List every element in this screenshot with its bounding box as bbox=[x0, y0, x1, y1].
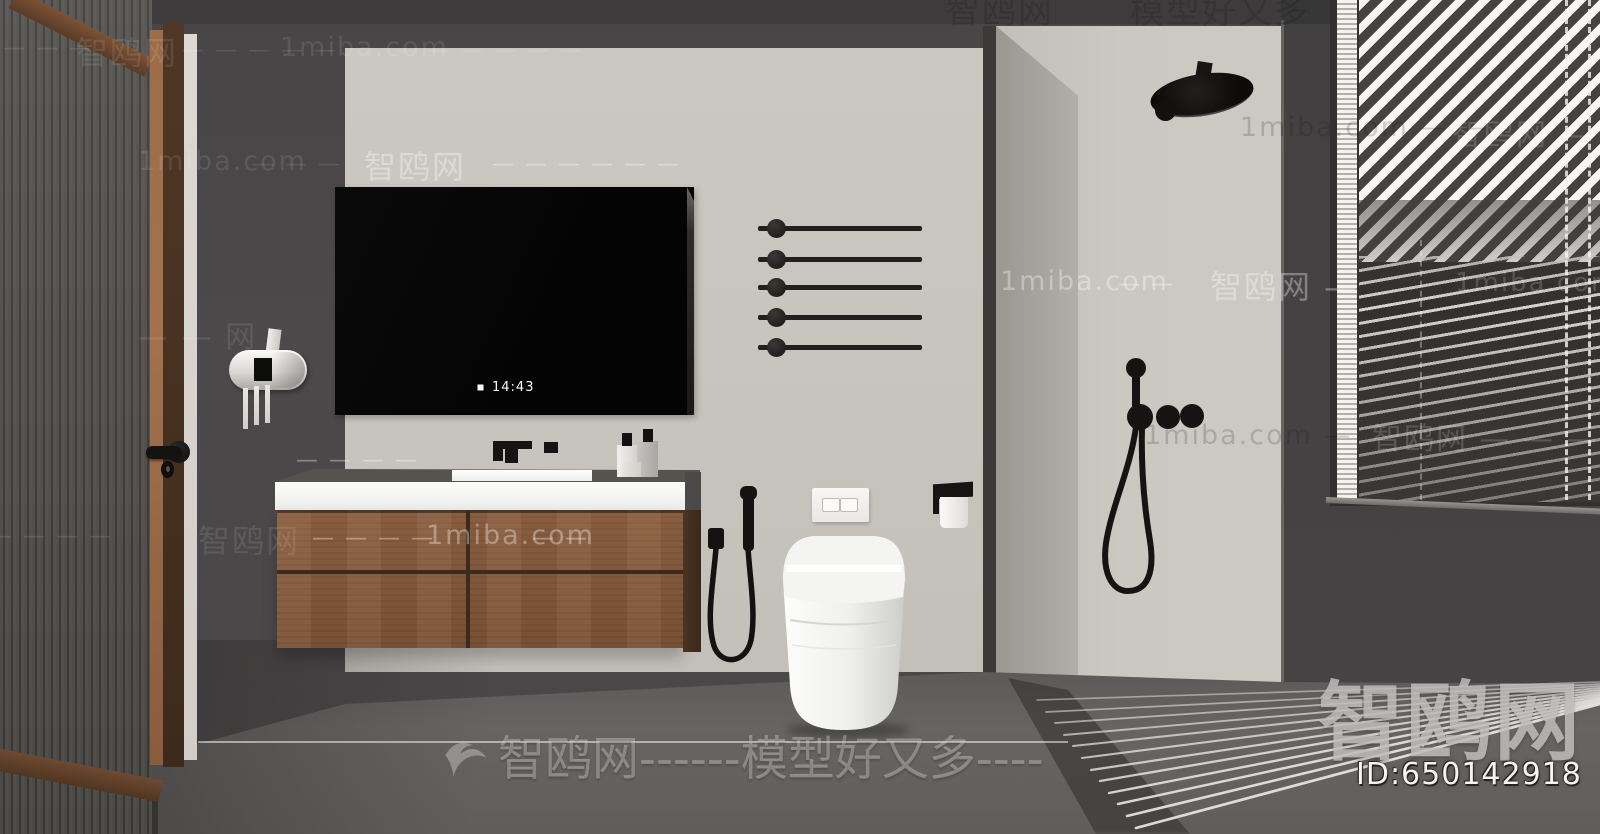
toothbrush bbox=[254, 386, 259, 425]
faucet-control[interactable] bbox=[544, 442, 551, 453]
towel-bar-mount bbox=[767, 250, 786, 269]
bottle-cap bbox=[643, 429, 653, 442]
toothbrush bbox=[243, 388, 248, 429]
blind-cord[interactable] bbox=[1565, 0, 1568, 500]
towel-bar-mount bbox=[767, 219, 786, 238]
rain-shower-mount bbox=[1155, 100, 1176, 121]
towel-bar-mount bbox=[767, 338, 786, 357]
vanity-sink-basin bbox=[452, 470, 592, 481]
smart-mirror-side-bevel bbox=[687, 187, 694, 415]
bidet-sprayer bbox=[690, 480, 780, 680]
model-id: ID:650142918 bbox=[1356, 757, 1582, 792]
door-edge-strip bbox=[184, 34, 197, 760]
drawer-gap-horizontal bbox=[277, 570, 683, 574]
vanity-cabinet-top-gap bbox=[277, 510, 683, 513]
fluted-door-lighting bbox=[0, 0, 152, 834]
toiletry-bottle-small bbox=[623, 462, 641, 477]
faucet-spout-drop bbox=[505, 447, 518, 463]
door-frame-stile-dark bbox=[163, 22, 184, 767]
mirror-time: 14:43 bbox=[492, 380, 534, 395]
mirror-clock: 14:43 bbox=[476, 379, 534, 395]
flush-button[interactable] bbox=[822, 498, 840, 512]
smart-toilet bbox=[770, 525, 920, 740]
toilet-paper-roll bbox=[940, 497, 968, 528]
blind-cord bbox=[1420, 240, 1422, 500]
floor-joint-line bbox=[198, 741, 1068, 743]
toothbrush bbox=[265, 385, 270, 423]
blinds-edge-stack bbox=[1337, 0, 1357, 500]
flush-button[interactable] bbox=[840, 498, 858, 512]
vanity-counter-front bbox=[275, 482, 685, 510]
sterilizer-display bbox=[254, 358, 272, 381]
faucet-control[interactable] bbox=[551, 442, 558, 453]
bottle-cap bbox=[622, 433, 632, 446]
door-frame-stile-light bbox=[150, 30, 163, 765]
stop-square-icon bbox=[476, 383, 485, 392]
blind-cord[interactable] bbox=[1588, 0, 1591, 500]
blinds-light-fade bbox=[1359, 200, 1600, 502]
towel-bar-mount bbox=[767, 278, 786, 297]
hand-shower-set bbox=[1085, 345, 1215, 605]
door-handle[interactable] bbox=[146, 446, 182, 459]
toiletry-bottle bbox=[638, 441, 658, 477]
bathroom-3d-render: 14:43 bbox=[0, 0, 1600, 834]
towel-bar-mount bbox=[767, 308, 786, 327]
drawer-gap-vertical bbox=[466, 510, 470, 648]
vanity-cabinet-grain bbox=[277, 510, 683, 648]
door-keyhole-pin bbox=[166, 466, 170, 472]
